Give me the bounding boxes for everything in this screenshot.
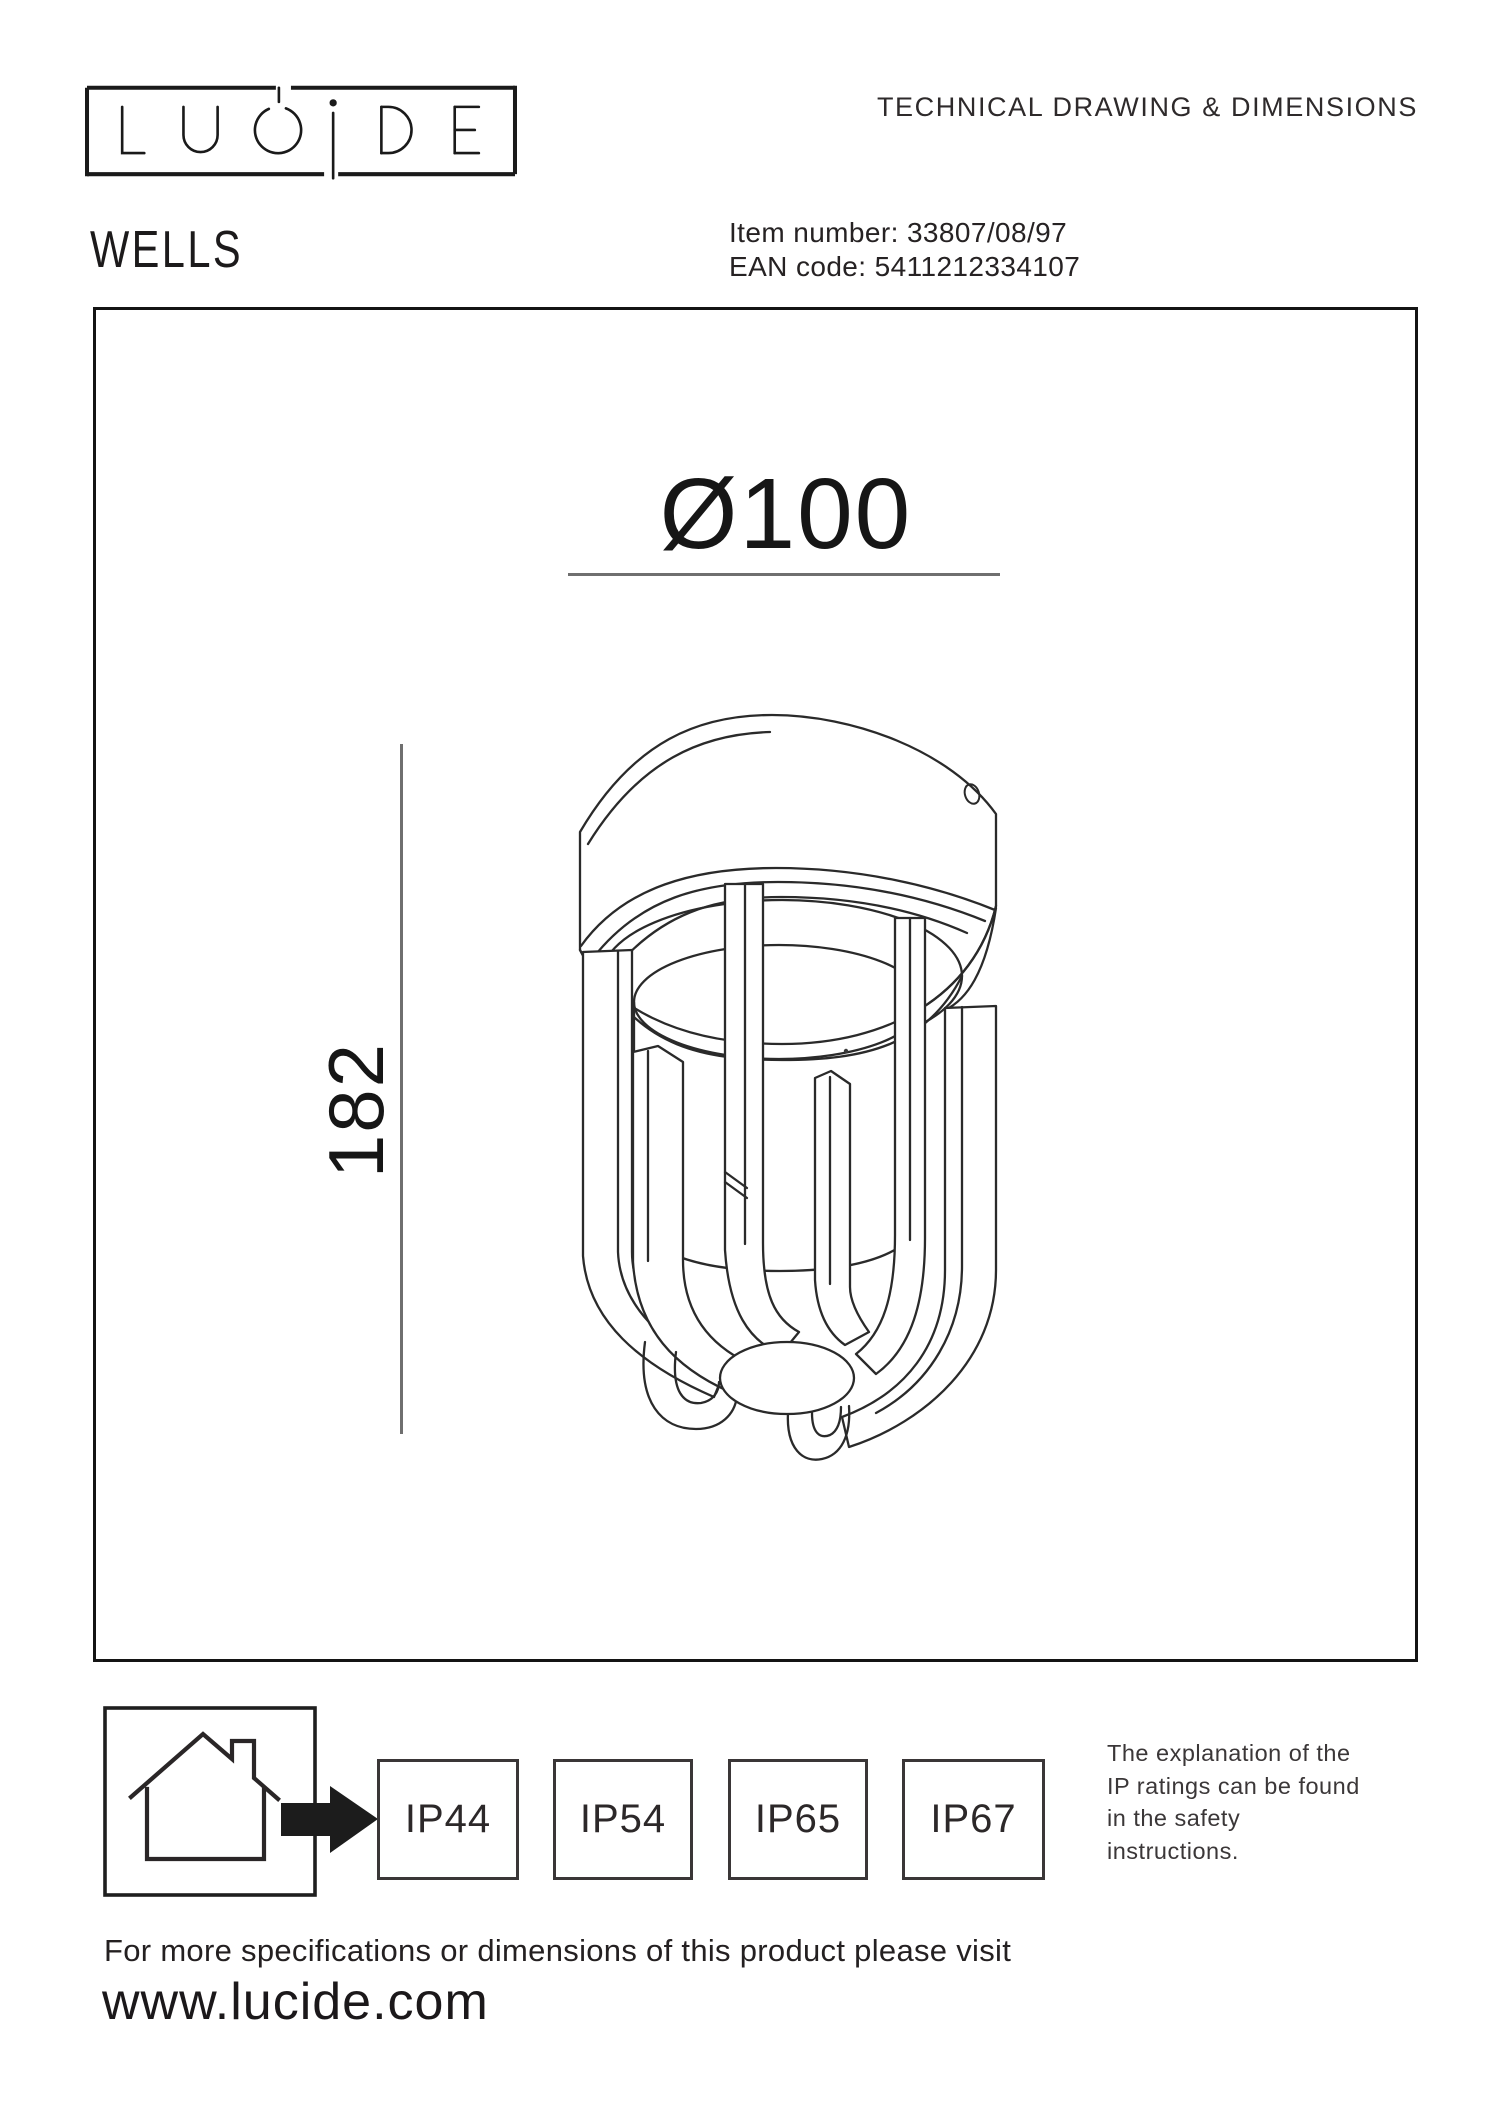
ip-rating-badge-ip54: IP54 [553,1759,693,1880]
ip-rating-badge-ip65: IP65 [728,1759,868,1880]
item-number-label: Item number: [729,217,899,248]
ean-code-line: EAN code: 5411212334107 [729,250,1080,284]
house-roof [131,1734,278,1799]
ip65-label: IP65 [755,1797,841,1842]
ip-rating-badge-ip67: IP67 [902,1759,1045,1880]
ip44-label: IP44 [405,1797,491,1842]
arrow-right-icon [281,1786,378,1853]
ean-code-value: 5411212334107 [875,251,1081,282]
spec-sheet-page: LUCIDE [0,0,1500,2122]
ip67-label: IP67 [930,1797,1016,1842]
lucide-logo-icon [85,82,517,186]
wells-fixture-drawing [93,307,1418,1660]
lucide-logo: LUCIDE [85,82,517,186]
ip-ratings-note: The explanation of the IP ratings can be… [1107,1737,1467,1867]
ip54-label: IP54 [580,1797,666,1842]
doc-title: TECHNICAL DRAWING & DIMENSIONS [877,92,1418,123]
ip-note-line: instructions. [1107,1835,1467,1868]
footer-note: For more specifications or dimensions of… [104,1933,1011,1969]
item-number-line: Item number: 33807/08/97 [729,216,1080,250]
house-walls [147,1789,264,1859]
item-number-value: 33807/08/97 [907,217,1067,248]
indoor-outdoor-house-icon [95,1698,395,1913]
ip-note-line: The explanation of the [1107,1737,1467,1770]
ip-note-line: in the safety [1107,1802,1467,1835]
ean-code-label: EAN code: [729,251,866,282]
ip-note-line: IP ratings can be found [1107,1770,1467,1803]
product-name: WELLS [90,220,243,280]
product-codes: Item number: 33807/08/97 EAN code: 54112… [729,216,1080,284]
footer-website-link[interactable]: www.lucide.com [102,1972,489,2032]
ip-rating-badge-ip44: IP44 [377,1759,519,1880]
bottom-hub [720,1342,854,1414]
